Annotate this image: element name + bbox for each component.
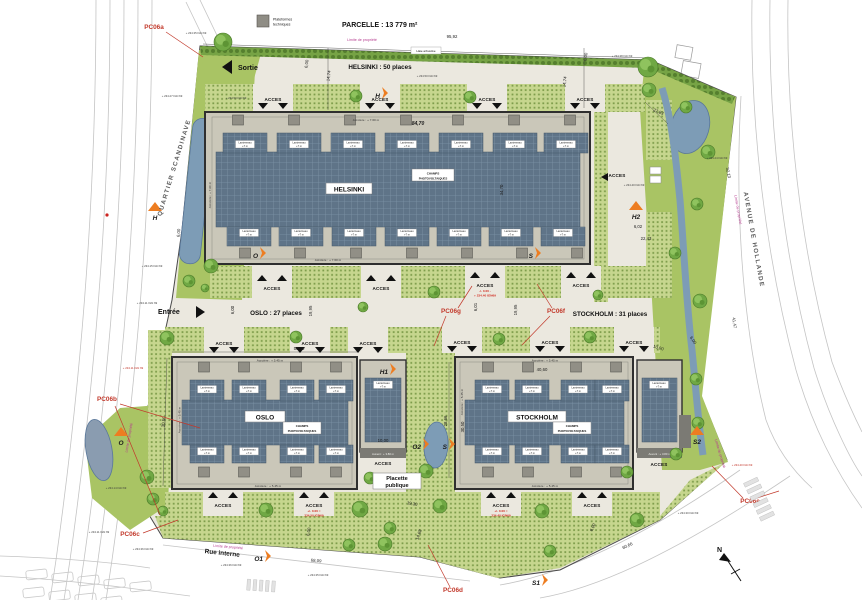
acrotere-label: Acrotère : + 5.45 m <box>255 484 282 488</box>
crosswalk-stripe <box>253 580 257 591</box>
lanterneau-label: +7 m <box>296 144 302 148</box>
tree-shade <box>499 338 503 342</box>
tree-icon <box>493 333 505 345</box>
lanterneau-label: +7 m <box>294 451 300 455</box>
lanterneau-label: +7 m <box>351 233 357 237</box>
tech-platform <box>453 115 464 125</box>
tree-icon <box>259 503 273 517</box>
tree-icon <box>638 57 658 77</box>
tree-icon <box>669 247 681 259</box>
spot-level-label: + 234.40 IGN 69 <box>732 463 753 467</box>
lanterneau-label: +7 m <box>529 451 535 455</box>
acrotere-label: Acrotère : + 7.60 m <box>315 258 342 262</box>
tech-platform <box>523 362 534 372</box>
acces-label: ACCES <box>359 341 376 346</box>
flow-marker-h: H <box>153 215 158 222</box>
property-limit-label: Limite de propriété <box>347 38 377 42</box>
tree-shade <box>627 471 631 475</box>
flow-marker-o1: O1 <box>254 556 263 563</box>
lanterneau-label: Lanterneau <box>292 141 306 145</box>
parcel-title: PARCELLE : 13 779 m² <box>342 22 418 29</box>
hydrant-dot-icon <box>105 213 108 216</box>
tree-shade <box>700 300 705 305</box>
tree-icon <box>642 83 656 97</box>
entree-label: Entrée <box>158 309 180 316</box>
lanterneau-label: +7 m <box>575 389 581 393</box>
tech-platform <box>462 248 473 258</box>
tree-icon <box>183 275 195 287</box>
flow-marker-h1: H1 <box>380 369 389 376</box>
lanterneau-label: +7 m <box>575 451 581 455</box>
spot-level-label: + 234.40 IGN 69 <box>624 183 645 187</box>
tree-icon <box>358 302 368 312</box>
tech-platform <box>331 467 342 477</box>
spot-level-label: + 234.11 IGN 69 <box>137 301 158 305</box>
tree-icon <box>670 448 682 460</box>
pv-field-label: PHOTOVOLTAIQUES <box>419 177 448 181</box>
lanterneau-label: +7 m <box>242 144 248 148</box>
placette-label: Placette <box>386 476 407 482</box>
tree-shade <box>696 378 700 382</box>
pv-panels <box>182 400 348 445</box>
dimension-label: 19,95 <box>308 305 313 316</box>
tree-shade <box>598 294 602 298</box>
permit-label-pc06g: PC06g <box>441 308 461 315</box>
tree-shade <box>360 508 366 514</box>
acces-label: ACCES <box>215 341 232 346</box>
tech-platform <box>571 362 582 372</box>
building-name-helsinki: HELSINKI <box>334 187 365 194</box>
spot-level-label: + 234.30 IGN 69 <box>678 511 699 515</box>
lanterneau-label: Lanterneau <box>242 448 256 452</box>
acrotere-label: Acrotère : + 5.45 m <box>257 359 284 363</box>
building-name-oslo: OSLO <box>256 415 274 422</box>
lanterneau-label: +7 m <box>489 451 495 455</box>
tech-platform <box>295 248 306 258</box>
acces-label: ACCES <box>214 503 231 508</box>
tree-shade <box>470 96 474 100</box>
spot-level-label: + 234.50 IGN 69 <box>417 74 438 78</box>
permit-label-pc06b: PC06b <box>97 396 117 403</box>
spot-level-label: + 234.50 IGN 69 <box>226 96 247 100</box>
tech-platform <box>565 115 576 125</box>
acrotere-label: Acrotère : + 7.60 m <box>353 118 380 122</box>
acces-label: ACCES <box>305 503 322 508</box>
tech-platform <box>331 362 342 372</box>
tree-shade <box>649 89 654 94</box>
lanterneau-label: Lanterneau <box>605 386 619 390</box>
lanterneau-label: +7 m <box>458 144 464 148</box>
tech-platform <box>291 362 302 372</box>
lanterneau-label: Lanterneau <box>290 448 304 452</box>
lanterneau-label: +7 m <box>404 233 410 237</box>
lanterneau-label: Lanterneau <box>400 229 414 233</box>
lanterneau-label: +7 m <box>560 233 566 237</box>
tree-icon <box>343 539 355 551</box>
tree-shade <box>697 203 701 207</box>
site-plan-page: Lanterneau+7 mLanterneau+7 mLanterneau+7… <box>0 0 862 600</box>
acces-label: ACCES <box>263 286 280 291</box>
flow-marker-s: S <box>443 444 448 451</box>
spot-level-label: + 234.35 IGN 69 <box>308 573 329 577</box>
tree-icon <box>384 522 396 534</box>
tech-platform <box>523 467 534 477</box>
lanterneau-label: Lanterneau <box>290 386 304 390</box>
acrotere-label: Acrotère : + 5.45 m <box>532 484 559 488</box>
flow-marker-s1: S1 <box>532 580 540 587</box>
tree-icon <box>201 284 209 292</box>
spot-level-label: + 234.36 IGN 69 <box>221 563 242 567</box>
spot-level-label: + 234.27 IGN 69 <box>162 94 183 98</box>
tree-shade <box>147 476 152 481</box>
tech-platform <box>407 248 418 258</box>
tree-shade <box>163 510 167 514</box>
lanterneau-label: Lanterneau <box>242 386 256 390</box>
lanterneau-label: Lanterneau <box>652 381 666 385</box>
dimension-label: 40,60 <box>537 367 548 372</box>
lanterneau-label: +7 m <box>489 389 495 393</box>
permit-label-pc06c: PC06c <box>120 531 140 538</box>
lanterneau-label: Lanterneau <box>376 381 390 385</box>
tech-platform <box>571 467 582 477</box>
dimension-label: 28,66 <box>443 415 448 426</box>
spot-level-label: + 234.11 IGN 69 <box>123 366 144 370</box>
tree-icon <box>621 466 633 478</box>
acces-level-note: + 234.40 IGN69 <box>474 294 496 298</box>
tree-shade <box>223 41 229 47</box>
tree-shade <box>637 519 642 524</box>
tree-shade <box>648 66 655 73</box>
tree-shade <box>363 306 367 310</box>
tree-shade <box>296 336 300 340</box>
spot-level-label: + 234.24 IGN 69 <box>707 156 728 160</box>
tree-shade <box>675 252 679 256</box>
lanterneau-label: Lanterneau <box>200 448 214 452</box>
tech-platform <box>572 248 583 258</box>
crosswalk-stripe <box>271 581 275 592</box>
lanterneau-label: Lanterneau <box>329 386 343 390</box>
dimension-label: 22,43 <box>641 236 652 241</box>
tech-platform <box>509 115 520 125</box>
flow-marker-s2: S2 <box>693 439 701 446</box>
permit-label-pc06f: PC06f <box>547 308 566 315</box>
tech-platform <box>240 248 251 258</box>
lanterneau-label: +7 m <box>609 389 615 393</box>
tree-shade <box>189 280 193 284</box>
spot-level-label: + 234.14 IGN 69 <box>106 486 127 490</box>
dimension-label: 84,70 <box>412 121 425 127</box>
tech-platform <box>289 115 300 125</box>
dimension-label: 6,01 <box>473 302 478 311</box>
dimension-label: 30,50 <box>460 421 465 432</box>
tech-platform <box>233 115 244 125</box>
lanterneau-label: +7 m <box>333 389 339 393</box>
lanterneau-label: Lanterneau <box>504 229 518 233</box>
acces-label: ACCES <box>374 461 391 466</box>
pv-field-label: CHAMPS <box>566 424 579 428</box>
tree-shade <box>356 95 360 99</box>
pv-field-label: PHOTOVOLTAIQUES <box>288 429 317 433</box>
tree-icon <box>160 331 174 345</box>
lanterneau-label: +7 m <box>246 233 252 237</box>
dimension-label: 50,40 <box>294 346 305 351</box>
dimension-label: 6,00 <box>176 228 182 237</box>
spot-level-label: + 234.35 IGN 69 <box>186 31 207 35</box>
acces-label: ACCES <box>583 503 600 508</box>
flow-marker-o: O <box>118 440 123 447</box>
acces-label: ACCES <box>371 97 388 102</box>
flow-marker-o2: O2 <box>412 444 421 451</box>
dimension-label: 95,92 <box>447 34 458 39</box>
tree-icon <box>204 259 218 273</box>
acces-label: ACCES <box>372 286 389 291</box>
lanterneau-label: +7 m <box>404 144 410 148</box>
spot-level-label: + 234.15 IGN 69 <box>142 264 163 268</box>
tree-shade <box>542 510 547 515</box>
flow-marker-h: H <box>375 93 380 100</box>
crosswalk-stripe <box>265 580 269 591</box>
lanterneau-label: Lanterneau <box>400 141 414 145</box>
dimension-label: 19,95 <box>513 304 518 315</box>
tree-shade <box>686 106 690 110</box>
tree-shade <box>211 265 216 270</box>
lanterneau-label: +7 m <box>656 385 662 389</box>
tree-icon <box>147 493 159 505</box>
lanterneau-label: Lanterneau <box>525 386 539 390</box>
lanterneau-label: Lanterneau <box>452 229 466 233</box>
tree-icon <box>593 290 603 300</box>
site-plan-drawing: Lanterneau+7 mLanterneau+7 mLanterneau+7… <box>0 0 862 600</box>
driveway <box>204 327 244 353</box>
dimension-label: 34,70 <box>499 184 504 195</box>
spot-level-label: + 234.11 IGN 69 <box>89 530 110 534</box>
tree-icon <box>464 91 476 103</box>
lanterneau-label: +7 m <box>529 389 535 393</box>
tree-icon <box>584 331 596 343</box>
tech-platform <box>517 248 528 258</box>
lanterneau-label: Lanterneau <box>238 141 252 145</box>
acces-level-note: 234.40 IGN69 <box>491 514 511 518</box>
lanterneau-label: Lanterneau <box>454 141 468 145</box>
flow-marker-h2: H2 <box>632 214 641 221</box>
lanterneau-label: +7 m <box>204 389 210 393</box>
lanterneau-label: Lanterneau <box>347 229 361 233</box>
tree-shade <box>440 505 445 510</box>
acces-label: ACCES <box>572 283 589 288</box>
acces-label: ACCES <box>453 340 470 345</box>
tree-icon <box>544 545 556 557</box>
acces-level-note: +/- 0.00 = <box>307 509 320 513</box>
lanterneau-label: Lanterneau <box>485 448 499 452</box>
tech-platform <box>199 362 210 372</box>
barrier-icon <box>650 167 661 174</box>
tech-platform <box>611 362 622 372</box>
pv-panels <box>216 152 580 227</box>
acces-level-note: 234.50 IGN69 <box>304 514 324 518</box>
spot-level-label: + 234.38 IGN 69 <box>612 54 633 58</box>
tree-shade <box>590 336 594 340</box>
tree-shade <box>434 291 438 295</box>
lanterneau-label: +7 m <box>204 451 210 455</box>
north-label: N <box>717 547 722 554</box>
dimension-label: 6,02 <box>634 224 643 229</box>
tree-shade <box>167 337 172 342</box>
lanterneau-label: Lanterneau <box>571 448 585 452</box>
legend-platform-swatch <box>257 15 269 27</box>
tree-icon <box>680 101 692 113</box>
acrotere-label: Acrotère : + 5.45 m <box>460 388 464 415</box>
tree-icon <box>378 537 392 551</box>
tree-icon <box>691 198 703 210</box>
permit-label-pc06d: PC06d <box>443 587 463 594</box>
acces-label: ACCES <box>478 97 495 102</box>
lanterneau-label: Lanterneau <box>294 229 308 233</box>
barrier-icon <box>650 176 661 183</box>
tech-platform <box>483 362 494 372</box>
acces-label: ACCES <box>650 462 667 467</box>
driveway <box>252 266 292 298</box>
lanterneau-label: +7 m <box>246 451 252 455</box>
permit-label-pc06a: PC06a <box>144 24 164 31</box>
tree-shade <box>676 453 680 457</box>
sortie-label: Sortie <box>238 65 258 72</box>
tree-shade <box>426 470 431 475</box>
tech-platform <box>199 467 210 477</box>
lanterneau-label: Lanterneau <box>571 386 585 390</box>
tree-icon <box>535 504 549 518</box>
pv-field-label: PHOTOVOLTAIQUES <box>558 429 587 433</box>
tech-platform <box>351 248 362 258</box>
lanterneau-label: +7 m <box>294 389 300 393</box>
building-name-stockholm: STOCKHOLM <box>516 415 558 422</box>
lanterneau-label: Lanterneau <box>329 448 343 452</box>
lanterneau-label: +7 m <box>456 233 462 237</box>
acces-label: ACCES <box>264 97 281 102</box>
helsinki-places-label: HELSINKI : 50 places <box>348 64 412 71</box>
lanterneau-label: Lanterneau <box>525 448 539 452</box>
lanterneau-label: +7 m <box>298 233 304 237</box>
acces-level-note: +/- 0.00 = <box>494 509 507 513</box>
stockholm-places-label: STOCKHOLM : 31 places <box>573 311 648 318</box>
auvent-label: Auvent : + 3.80 m <box>372 452 395 456</box>
tree-shade <box>550 550 554 554</box>
spot-level-label: + 234.36 IGN 69 <box>133 547 154 551</box>
tree-icon <box>690 373 702 385</box>
acrotere-label: Acrotère : + 5.45 m <box>178 406 182 433</box>
lanterneau-label: +7 m <box>563 144 569 148</box>
acrotere-label: Acrotère : + 5.45 m <box>532 359 559 363</box>
lanterneau-label: Lanterneau <box>485 386 499 390</box>
lanterneau-label: +7 m <box>380 385 386 389</box>
tree-shade <box>390 527 394 531</box>
tech-platform <box>239 362 250 372</box>
lanterneau-label: +7 m <box>246 389 252 393</box>
tech-platform <box>611 467 622 477</box>
tree-icon <box>693 294 707 308</box>
tech-platform <box>483 467 494 477</box>
acrotere-label: Acrotère : + 7.60 m <box>208 181 212 208</box>
placette-label: publique <box>385 483 408 489</box>
auvent-label: Auvent : + 3.80 m <box>649 452 672 456</box>
tech-platform <box>291 467 302 477</box>
tree-icon <box>352 501 368 517</box>
auvent-s2-side <box>679 415 691 448</box>
tech-platform <box>239 467 250 477</box>
lanterneau-label: +7 m <box>350 144 356 148</box>
tree-icon <box>630 513 644 527</box>
tree-icon <box>692 417 704 429</box>
tree-icon <box>350 90 362 102</box>
lanterneau-label: Lanterneau <box>605 448 619 452</box>
acces-label: ACCES <box>576 97 593 102</box>
flow-marker-s: S <box>529 253 534 260</box>
lanterneau-label: Lanterneau <box>508 141 522 145</box>
lanterneau-label: +7 m <box>508 233 514 237</box>
lanterneau-label: Lanterneau <box>346 141 360 145</box>
tree-icon <box>428 286 440 298</box>
tree-shade <box>349 544 353 548</box>
flow-marker-o: O <box>253 253 258 260</box>
pv-field-label: CHAMPS <box>296 424 309 428</box>
tree-shade <box>266 509 271 514</box>
dimension-label: 10,00 <box>378 438 389 443</box>
pv-panels <box>465 400 624 445</box>
haie-label: Haie arbustive <box>416 49 436 53</box>
dimension-label: 68,09 <box>311 558 323 564</box>
oslo-places-label: OSLO : 27 places <box>250 310 302 317</box>
legend-platforms-label: Plateformes <box>273 18 292 22</box>
driveway <box>348 327 388 353</box>
acces-label: ACCES <box>625 340 642 345</box>
driveway <box>361 266 401 298</box>
acces-label: ACCES <box>492 503 509 508</box>
tree-shade <box>205 287 208 290</box>
lanterneau-label: Lanterneau <box>559 141 573 145</box>
tree-icon <box>433 499 447 513</box>
legend-platforms-label: techniques <box>273 23 291 27</box>
tree-icon <box>290 331 302 343</box>
lanterneau-label: +7 m <box>333 451 339 455</box>
acces-label: ACCES <box>608 173 625 178</box>
tree-icon <box>214 33 232 51</box>
pv-field-label: CHAMPS <box>427 172 440 176</box>
crosswalk-stripe <box>247 579 251 590</box>
tree-shade <box>385 543 390 548</box>
dimension-label: 6,00 <box>230 305 235 314</box>
lanterneau-label: Lanterneau <box>200 386 214 390</box>
acces-label: ACCES <box>476 283 493 288</box>
acces-label: ACCES <box>541 340 558 345</box>
lanterneau-label: +7 m <box>512 144 518 148</box>
lanterneau-label: +7 m <box>609 451 615 455</box>
tech-platform <box>401 115 412 125</box>
lanterneau-label: Lanterneau <box>242 229 256 233</box>
tree-shade <box>698 422 702 426</box>
acces-level-note: -/- 0.00 - <box>479 289 491 293</box>
lanterneau-label: Lanterneau <box>556 229 570 233</box>
crosswalk-stripe <box>259 580 263 591</box>
